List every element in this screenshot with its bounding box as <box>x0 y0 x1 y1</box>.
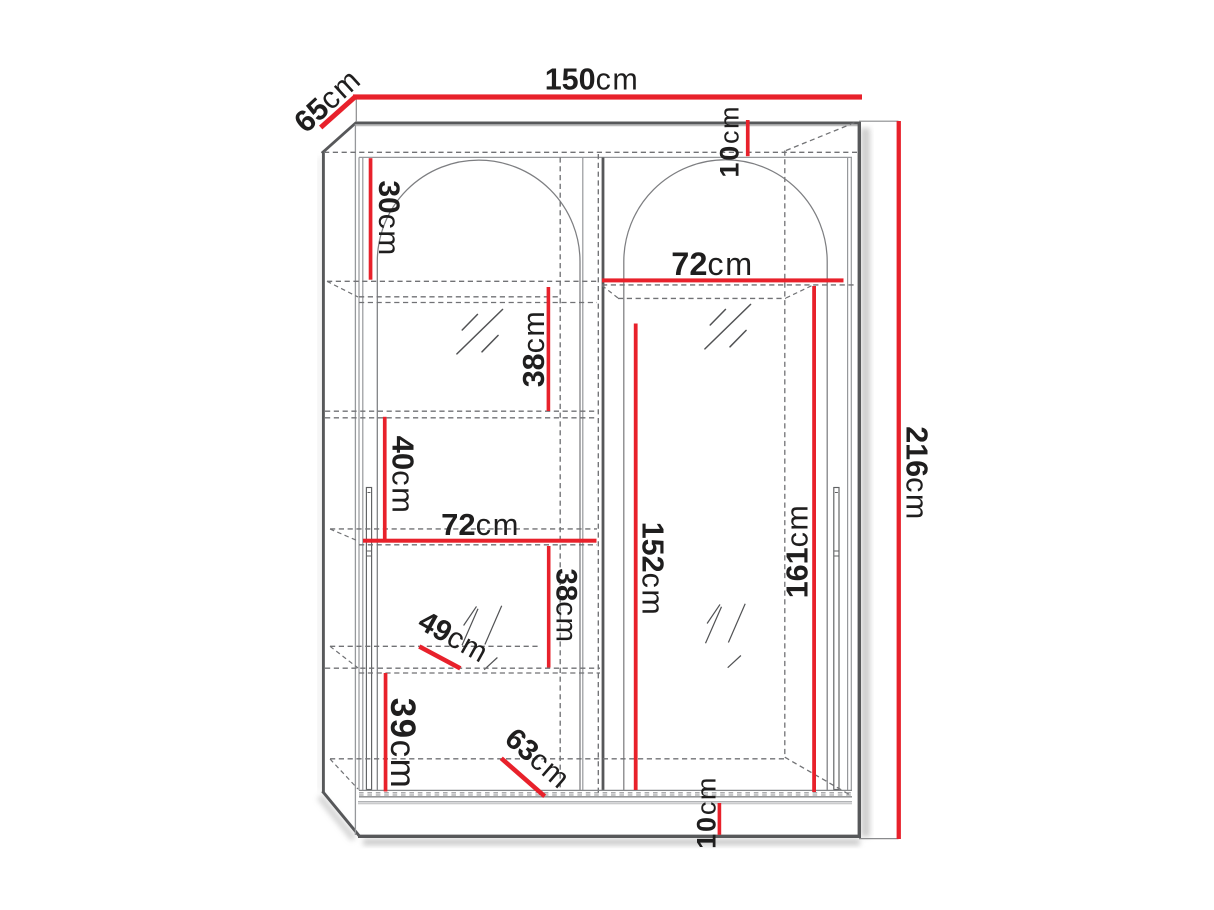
svg-text:10cm: 10cm <box>692 776 722 849</box>
svg-text:72cm: 72cm <box>441 507 520 542</box>
svg-text:10cm: 10cm <box>715 105 745 178</box>
svg-text:161cm: 161cm <box>781 504 815 599</box>
svg-text:38cm: 38cm <box>517 310 551 388</box>
svg-text:30cm: 30cm <box>372 180 405 256</box>
svg-text:40cm: 40cm <box>385 436 420 515</box>
svg-text:216cm: 216cm <box>900 426 934 521</box>
svg-text:39cm: 39cm <box>383 698 422 790</box>
svg-text:72cm: 72cm <box>671 246 753 282</box>
svg-text:152cm: 152cm <box>636 522 670 617</box>
svg-text:38cm: 38cm <box>550 568 583 643</box>
svg-text:150cm: 150cm <box>545 63 640 97</box>
